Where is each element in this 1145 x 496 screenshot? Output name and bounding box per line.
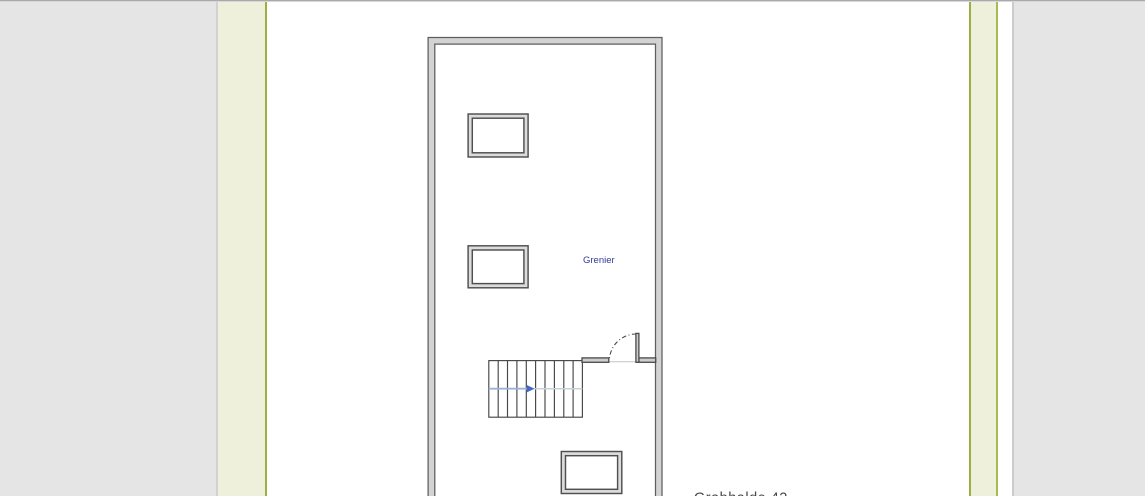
svg-text:Grenier: Grenier [583,255,615,266]
svg-text:Grabhalde 42: Grabhalde 42 [694,491,788,496]
